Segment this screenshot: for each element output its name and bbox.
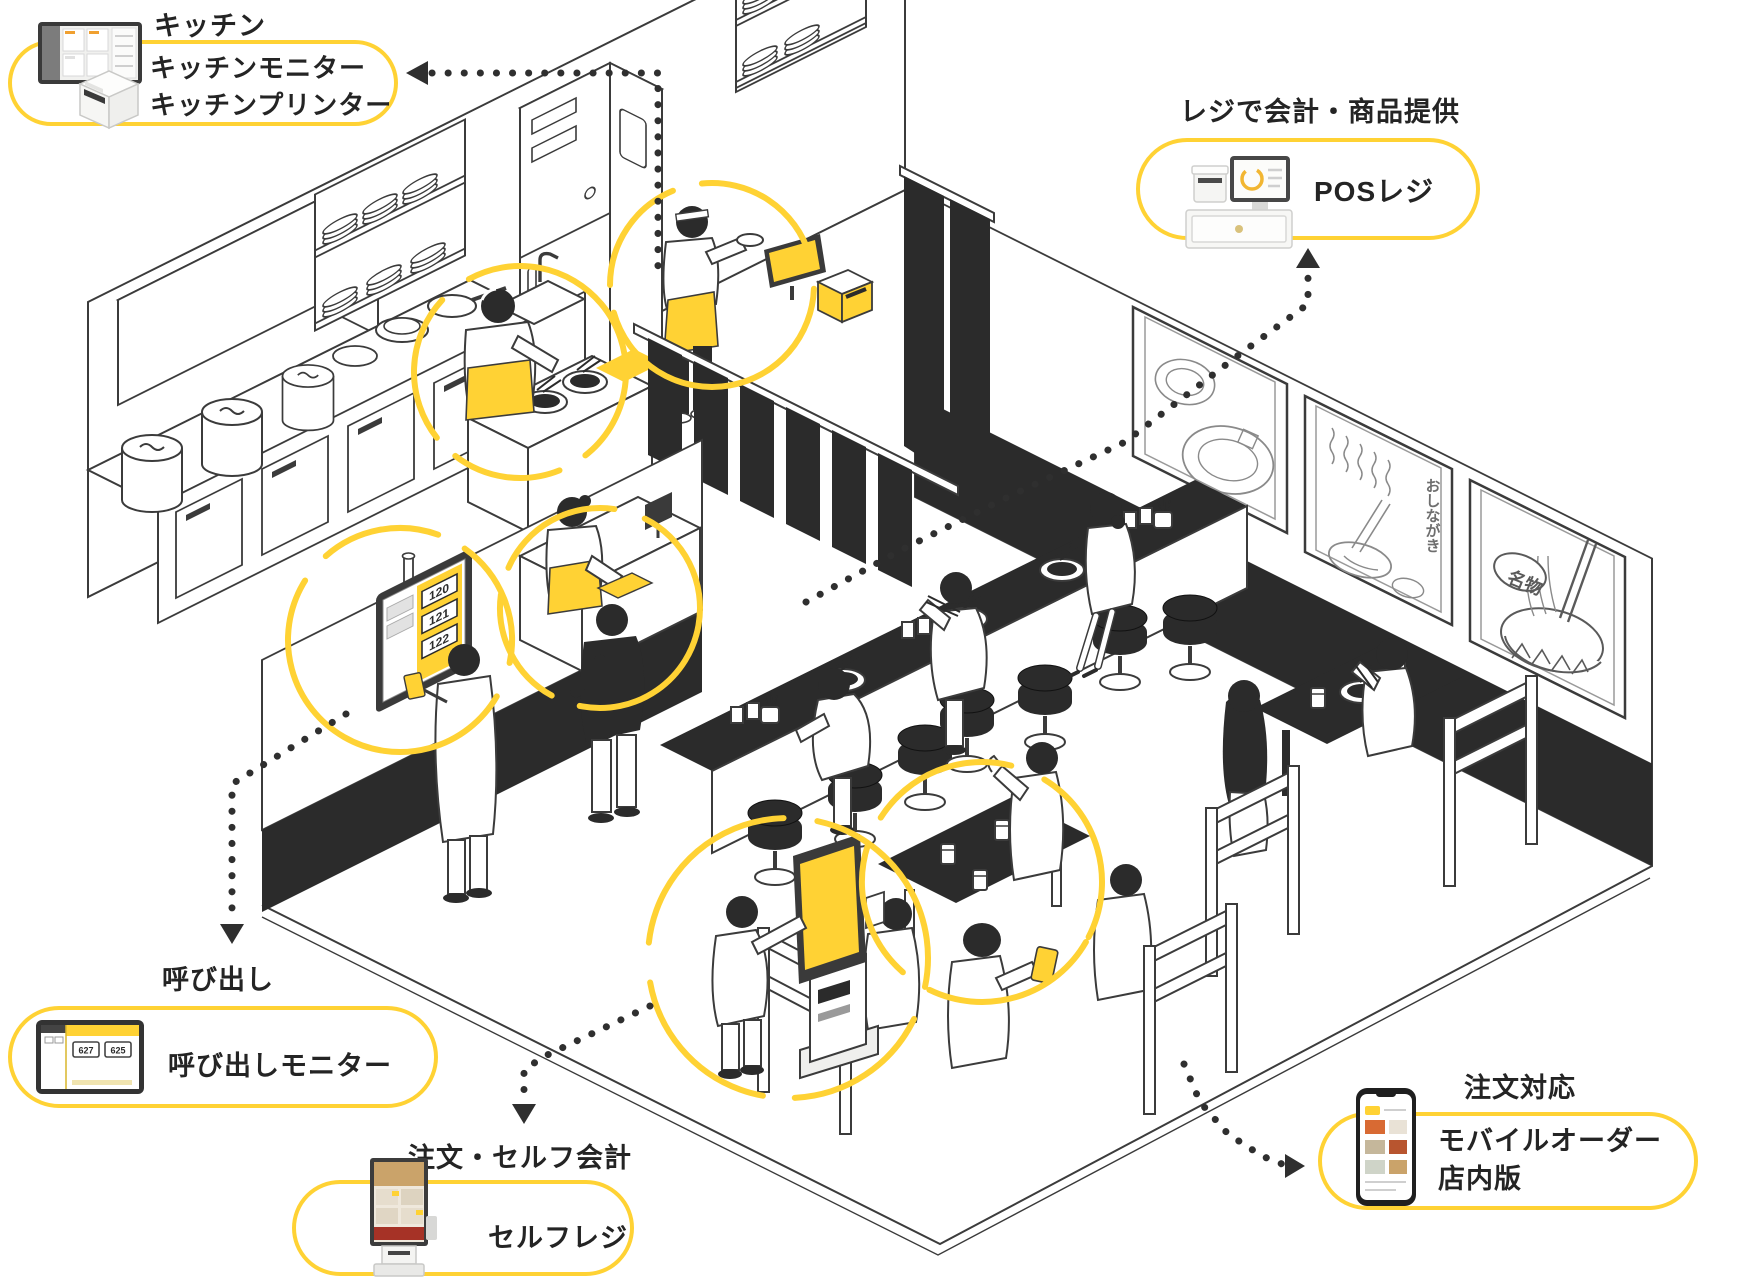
connector-mobile bbox=[1184, 1064, 1282, 1164]
pos-register-thumbnail bbox=[1180, 146, 1298, 252]
call-thumb-number-2: 625 bbox=[110, 1046, 125, 1056]
kitchen-label-line2: キッチンプリンター bbox=[150, 87, 392, 124]
kitchen-label-line1: キッチンモニター bbox=[150, 50, 392, 87]
restaurant-system-infographic: おしながき 名物 bbox=[0, 0, 1760, 1280]
arrow-mobile bbox=[1285, 1154, 1305, 1178]
call-label: 呼び出しモニター bbox=[168, 1044, 392, 1083]
kiosk-screen bbox=[800, 846, 859, 970]
arrow-pos bbox=[1296, 248, 1320, 268]
kiosk-customer bbox=[712, 896, 806, 1079]
self-checkout-label: セルフレジ bbox=[488, 1216, 628, 1255]
mobile-order-label-line2: 店内版 bbox=[1438, 1160, 1662, 1198]
self-checkout-kiosk-thumbnail bbox=[352, 1158, 446, 1278]
call-thumb-number-1: 627 bbox=[78, 1046, 93, 1056]
pos-label: POSレジ bbox=[1314, 170, 1434, 210]
arrow-call bbox=[220, 924, 244, 944]
kitchen-printer-thumbnail bbox=[74, 68, 144, 130]
kitchen-label: キッチンモニター キッチンプリンター bbox=[150, 50, 392, 124]
group-woman-phone bbox=[948, 923, 1058, 1068]
arrow-kitchen bbox=[406, 61, 428, 85]
call-monitor-thumbnail: 627 625 bbox=[36, 1020, 144, 1094]
mobile-order-label-line1: モバイルオーダー bbox=[1438, 1122, 1662, 1160]
mobile-order-phone-thumbnail bbox=[1356, 1088, 1416, 1206]
pos-title: レジで会計・商品提供 bbox=[1180, 90, 1460, 129]
wall-art-menu-text: おしながき bbox=[1424, 478, 1441, 553]
self-checkout-kiosk-scene bbox=[712, 834, 884, 1079]
kitchen-printer-device bbox=[818, 270, 872, 322]
arrow-kiosk bbox=[512, 1104, 536, 1124]
mobile-order-title: 注文対応 bbox=[1420, 1066, 1620, 1105]
call-title: 呼び出し bbox=[118, 958, 318, 997]
mobile-order-label: モバイルオーダー 店内版 bbox=[1438, 1122, 1662, 1198]
connector-kiosk bbox=[524, 1006, 650, 1102]
